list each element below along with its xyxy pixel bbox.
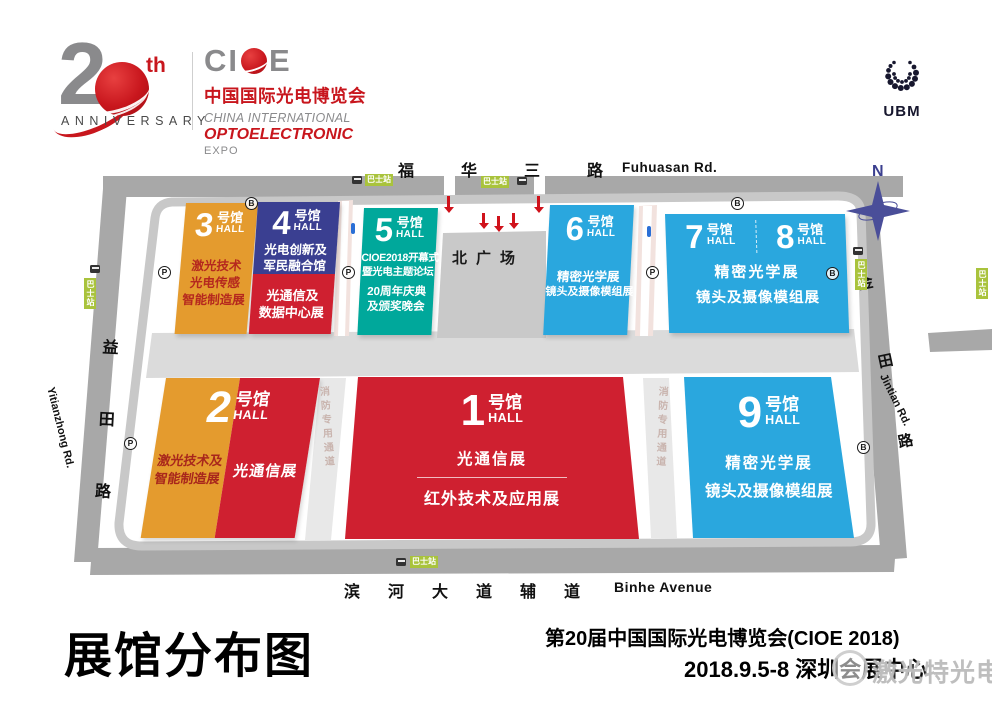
parking-icon: P <box>342 266 355 279</box>
bus-stop-badge: 巴士站 <box>365 174 393 186</box>
bus-icon <box>352 176 362 184</box>
compass-icon: N <box>845 158 915 253</box>
bus-stop-badge: 巴士站 <box>976 268 988 299</box>
hall-1-exhibits-1: 光通信展 <box>345 447 639 469</box>
cioe-logo: CI E 中国国际光电博览会 CHINA INTERNATIONAL OPTOE… <box>204 46 366 157</box>
hall-6-title: 6 号馆HALL <box>548 212 634 245</box>
header-divider <box>192 52 193 130</box>
cioe-floorplan-poster: 2 th ANNIVERSARY CI E 中国国际光电博览会 CHINA IN… <box>0 0 992 710</box>
hall-2-title: 2 号馆HALL <box>158 386 319 430</box>
cioe-wordmark: CI E <box>204 46 366 76</box>
road-label-fuhuasan-en: Fuhuasan Rd. <box>622 160 717 175</box>
cioe-ball-icon <box>241 48 267 74</box>
hall-5: 5 号馆HALL CIOE2018开幕式 暨光电主题论坛 20周年庆典 及颁奖晚… <box>357 208 438 335</box>
cioe-english-line2: OPTOELECTRONIC <box>204 126 366 144</box>
hall-4-bottom-section: 光通信及 数据中心展 <box>249 274 335 334</box>
hall-8-title: 8 号馆HALL <box>756 220 847 253</box>
hall-2: 激光技术及 智能制造展 光通信展 2 号馆HALL <box>141 378 320 538</box>
entrance-arrow-icon <box>497 216 500 226</box>
watermark-text: 激光特光电 <box>872 653 992 689</box>
hall-9-exhibits-2: 镜头及摄像模组展 <box>684 479 854 501</box>
bus-stop-badge: 巴士站 <box>410 556 438 568</box>
hall-4: 4 号馆HALL 光电创新及 军民融合馆 光通信及 数据中心展 <box>249 202 340 334</box>
watermark-seal-icon <box>832 650 868 686</box>
anniversary-20th-logo: 2 th ANNIVERSARY <box>58 40 208 140</box>
hall-4-bottom-exhibits: 光通信及 数据中心展 <box>258 287 325 321</box>
bus-stop-badge: 巴士站 <box>481 176 509 188</box>
parking-icon: P <box>646 266 659 279</box>
cioe-wordmark-left: CI <box>204 43 239 79</box>
hall-9: 9 号馆HALL 精密光学展 镜头及摄像模组展 <box>684 377 854 538</box>
road-stub-right <box>928 329 992 352</box>
hall-1-title: 1 号馆HALL <box>345 389 639 433</box>
hall-9-exhibits-1: 精密光学展 <box>684 451 854 473</box>
hall-1-exhibits-2: 红外技术及应用展 <box>345 485 639 509</box>
hall-78-exhibits-2: 镜头及摄像模组展 <box>668 286 849 307</box>
cioe-chinese-name: 中国国际光电博览会 <box>204 83 366 108</box>
parking-icon: P <box>158 266 171 279</box>
event-name: 第20届中国国际光电博览会(CIOE 2018) <box>545 622 900 651</box>
road-label-binhe-en: Binhe Avenue <box>614 579 712 595</box>
parking-icon: P <box>124 437 137 450</box>
hall-7-title: 7 号馆HALL <box>665 220 756 253</box>
cioe-wordmark-right: E <box>269 43 292 79</box>
info-point-icon <box>351 223 355 234</box>
ubm-label: UBM <box>872 103 932 120</box>
hall-5-title: 5 号馆HALL <box>362 213 438 246</box>
hall-4-top-exhibits: 光电创新及 军民融合馆 <box>253 242 337 274</box>
entrance-arrow-icon <box>537 196 540 207</box>
hall-6-exhibits-1: 精密光学展 <box>546 269 631 285</box>
entrance-arrow-icon <box>482 213 485 223</box>
ubm-logo: UBM <box>872 52 932 120</box>
compass-north-label: N <box>872 163 884 180</box>
north-plaza-label: 北广场 <box>452 247 524 268</box>
bus-stop-badge: 巴士站 <box>84 278 96 309</box>
entrance-arrow-icon <box>447 196 450 207</box>
info-point-icon <box>647 226 651 237</box>
cioe-english-line1: CHINA INTERNATIONAL <box>204 111 366 125</box>
anniversary-ball-icon <box>95 62 149 116</box>
hall-3: 3 号馆HALL 激光技术 光电传感 智能制造展 <box>175 203 258 334</box>
anniversary-label: ANNIVERSARY <box>61 114 211 128</box>
hall-1: 1 号馆HALL 光通信展 红外技术及应用展 <box>345 377 639 539</box>
bus-icon <box>517 177 527 185</box>
hall-5-events-2: 20周年庆典 及颁奖晚会 <box>358 285 434 314</box>
hall-6: 6 号馆HALL 精密光学展 镜头及摄像模组展 <box>543 205 634 335</box>
hall-6-exhibits-2: 镜头及摄像模组展 <box>545 285 630 300</box>
fire-lane-label-right: 消防专用通道 <box>652 386 670 470</box>
bus-icon <box>396 558 406 566</box>
hall-3-title: 3 号馆HALL <box>183 208 258 241</box>
bus-icon <box>853 247 863 255</box>
bus-stop-badge: 巴士站 <box>855 259 867 290</box>
hall-4-title: 4 号馆HALL <box>255 206 339 239</box>
hall-7-8: 7 号馆HALL 8 号馆HALL 精密光学展 镜头及摄像模组展 <box>665 214 849 333</box>
anniversary-th: th <box>146 54 166 78</box>
hall-5-events-1: CIOE2018开幕式 暨光电主题论坛 <box>360 252 435 279</box>
bus-stop-icon: B <box>857 441 870 454</box>
ubm-horseshoe-icon <box>880 52 924 96</box>
hall-1-divider <box>417 477 567 478</box>
bus-stop-icon: B <box>826 267 839 280</box>
cioe-english-line3: EXPO <box>204 145 366 157</box>
hall-3-exhibits: 激光技术 光电传感 智能制造展 <box>177 258 253 309</box>
bus-icon <box>90 265 100 273</box>
page-title: 展馆分布图 <box>64 616 314 686</box>
bus-stop-icon: B <box>731 197 744 210</box>
entrance-arrow-icon <box>512 213 515 223</box>
bus-stop-icon: B <box>245 197 258 210</box>
hall-9-title: 9 号馆HALL <box>684 391 854 435</box>
hall-4-top-section: 4 号馆HALL 光电创新及 军民融合馆 <box>253 202 340 274</box>
road-label-binhe-cn: 滨河大道辅道 <box>344 578 608 602</box>
hall-78-exhibits-1: 精密光学展 <box>667 261 848 282</box>
